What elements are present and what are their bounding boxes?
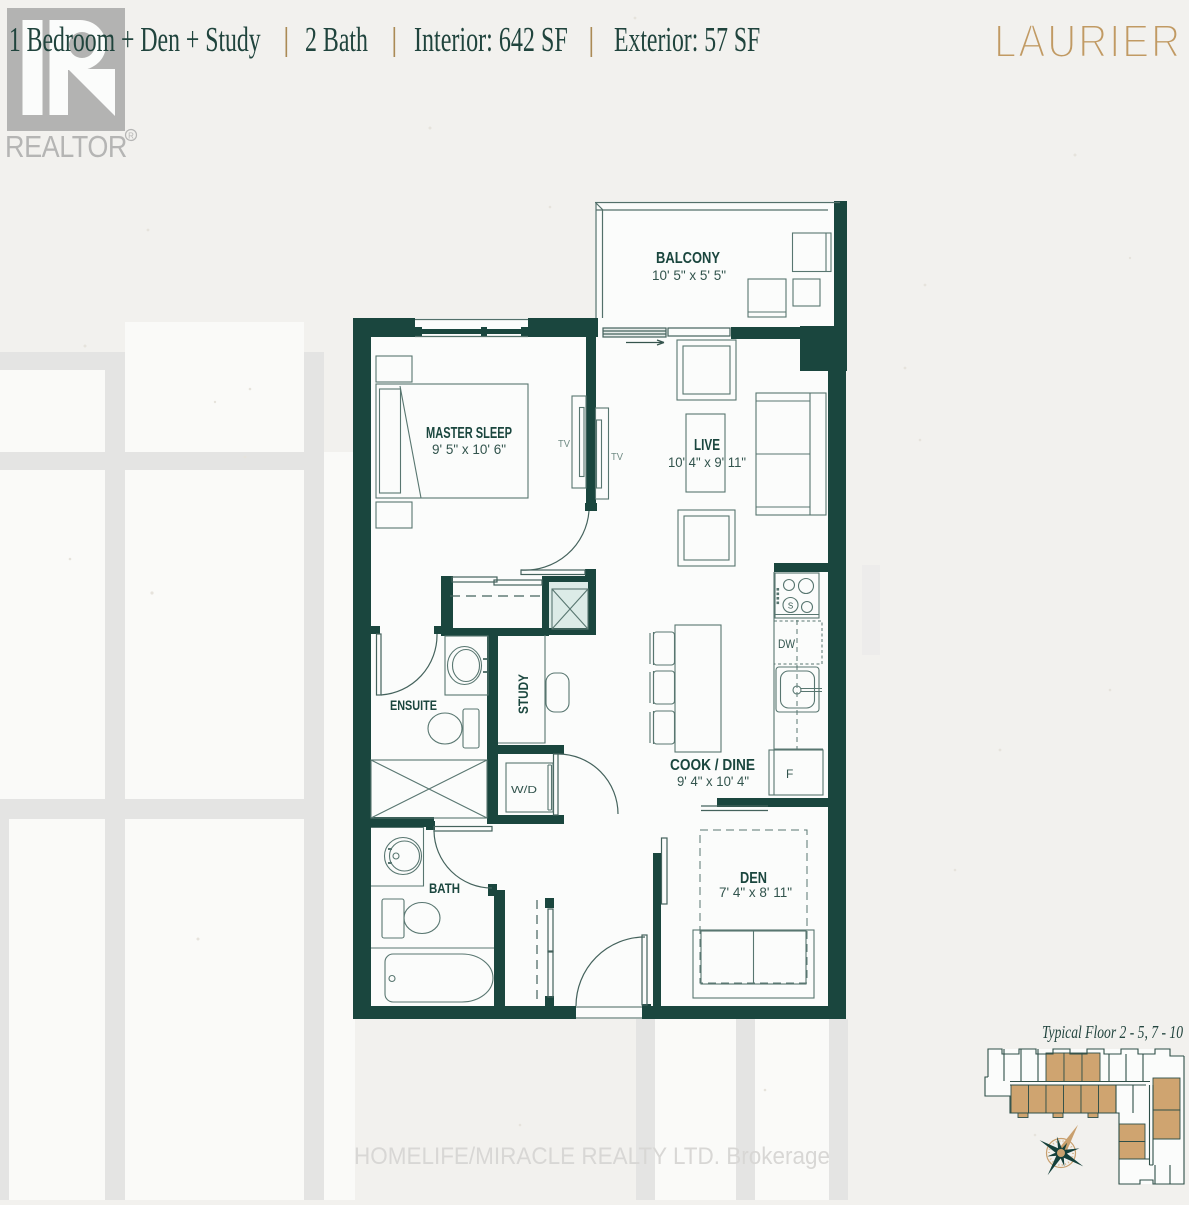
svg-text:2 Bath: 2 Bath [305,19,368,59]
svg-text:9' 4" x 10' 4": 9' 4" x 10' 4" [677,774,749,789]
svg-text:|: | [588,22,595,58]
svg-text:STUDY: STUDY [515,673,531,714]
svg-text:MASTER SLEEP: MASTER SLEEP [426,425,512,442]
svg-text:Exterior: 57 SF: Exterior: 57 SF [614,19,760,59]
svg-text:10' 5" x 5' 5": 10' 5" x 5' 5" [652,268,726,283]
svg-text:DW: DW [778,637,796,651]
svg-text:F: F [786,767,793,781]
svg-text:7' 4" x 8' 11": 7' 4" x 8' 11" [719,885,792,900]
svg-text:HOMELIFE/MIRACLE REALTY LTD. B: HOMELIFE/MIRACLE REALTY LTD. Brokerage [354,1143,830,1170]
svg-text:S: S [788,602,793,611]
svg-text:TV: TV [611,451,623,463]
svg-text:|: | [283,22,290,58]
svg-text:10' 4" x 9' 11": 10' 4" x 9' 11" [668,455,746,470]
svg-text:TV: TV [558,438,570,450]
svg-text:LAURIER: LAURIER [994,15,1182,67]
svg-text:9' 5" x 10' 6": 9' 5" x 10' 6" [432,442,506,457]
svg-text:R: R [128,132,134,141]
svg-text:Interior: 642 SF: Interior: 642 SF [414,19,568,59]
svg-text:LIVE: LIVE [694,437,720,454]
svg-text:Typical Floor 2 - 5, 7 - 10: Typical Floor 2 - 5, 7 - 10 [1042,1022,1183,1042]
svg-text:1 Bedroom + Den + Study: 1 Bedroom + Den + Study [9,20,261,59]
svg-text:BATH: BATH [429,881,460,896]
svg-text:|: | [391,22,398,58]
svg-text:BALCONY: BALCONY [656,250,721,267]
svg-text:COOK / DINE: COOK / DINE [670,757,755,774]
svg-text:ENSUITE: ENSUITE [390,697,437,713]
svg-text:REALTOR: REALTOR [5,129,127,164]
svg-text:W/D: W/D [511,784,538,796]
